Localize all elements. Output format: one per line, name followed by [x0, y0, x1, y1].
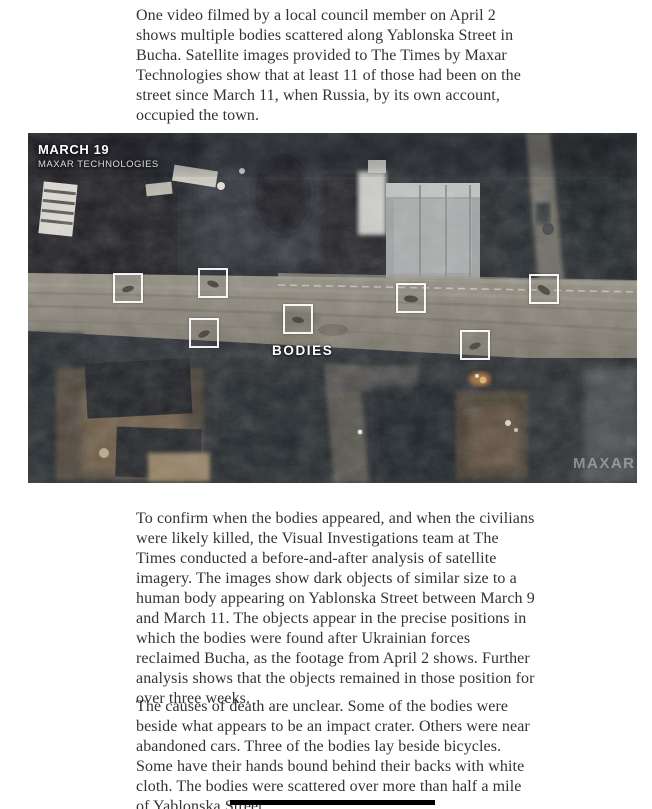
body-marker-box-5	[396, 283, 426, 313]
bodies-annotation-label: BODIES	[272, 343, 333, 358]
body-marker-box-3	[189, 318, 219, 348]
body-marker-box-4	[283, 304, 313, 334]
article-paragraph-2: To confirm when the bodies appeared, and…	[136, 509, 535, 709]
article-page: One video filmed by a local council memb…	[0, 0, 652, 809]
section-divider	[230, 800, 435, 805]
maxar-watermark: MAXAR	[573, 455, 636, 472]
body-marker-box-7	[529, 274, 559, 304]
article-paragraph-1: One video filmed by a local council memb…	[136, 6, 535, 126]
figure-source-label: MAXAR TECHNOLOGIES	[38, 159, 159, 170]
body-marker-box-2	[198, 268, 228, 298]
satellite-figure: MARCH 19 MAXAR TECHNOLOGIES BODIES MAXAR	[28, 133, 637, 483]
article-paragraph-3: The causes of death are unclear. Some of…	[136, 697, 535, 809]
body-marker-box-6	[460, 330, 490, 360]
satellite-image	[28, 133, 637, 483]
body-marker-box-1	[113, 273, 143, 303]
figure-date-label: MARCH 19	[38, 142, 109, 157]
